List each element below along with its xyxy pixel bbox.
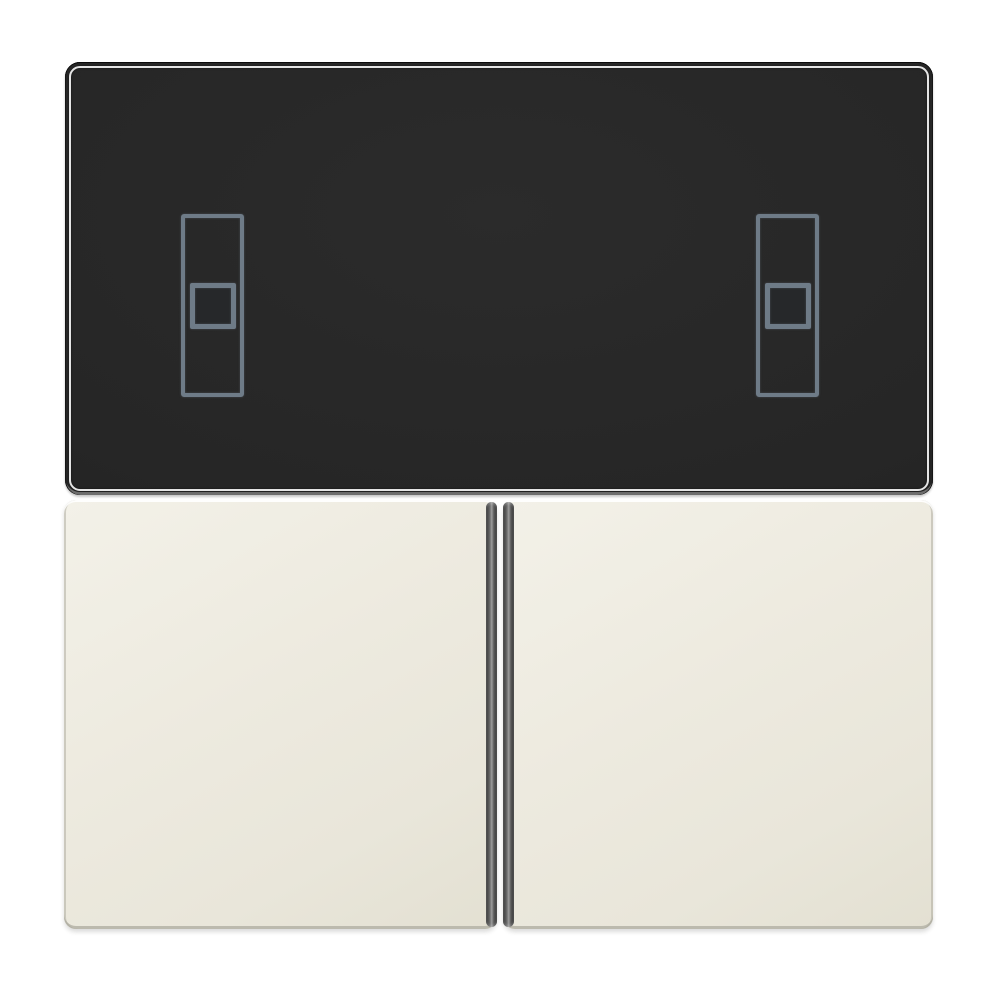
rocker-inner-side-face-left — [486, 502, 497, 927]
product-photo — [0, 0, 1000, 1000]
rocker-pictogram-icon-left — [181, 214, 244, 397]
rocker-pictogram-icon-right — [756, 214, 819, 397]
rocker-button-right — [503, 500, 933, 929]
pictogram-center-square-icon — [765, 283, 811, 329]
rocker-inner-side-face-right — [503, 502, 514, 927]
rocker-button-left — [64, 500, 497, 929]
pictogram-center-square-icon — [190, 283, 236, 329]
control-panel — [65, 62, 933, 495]
